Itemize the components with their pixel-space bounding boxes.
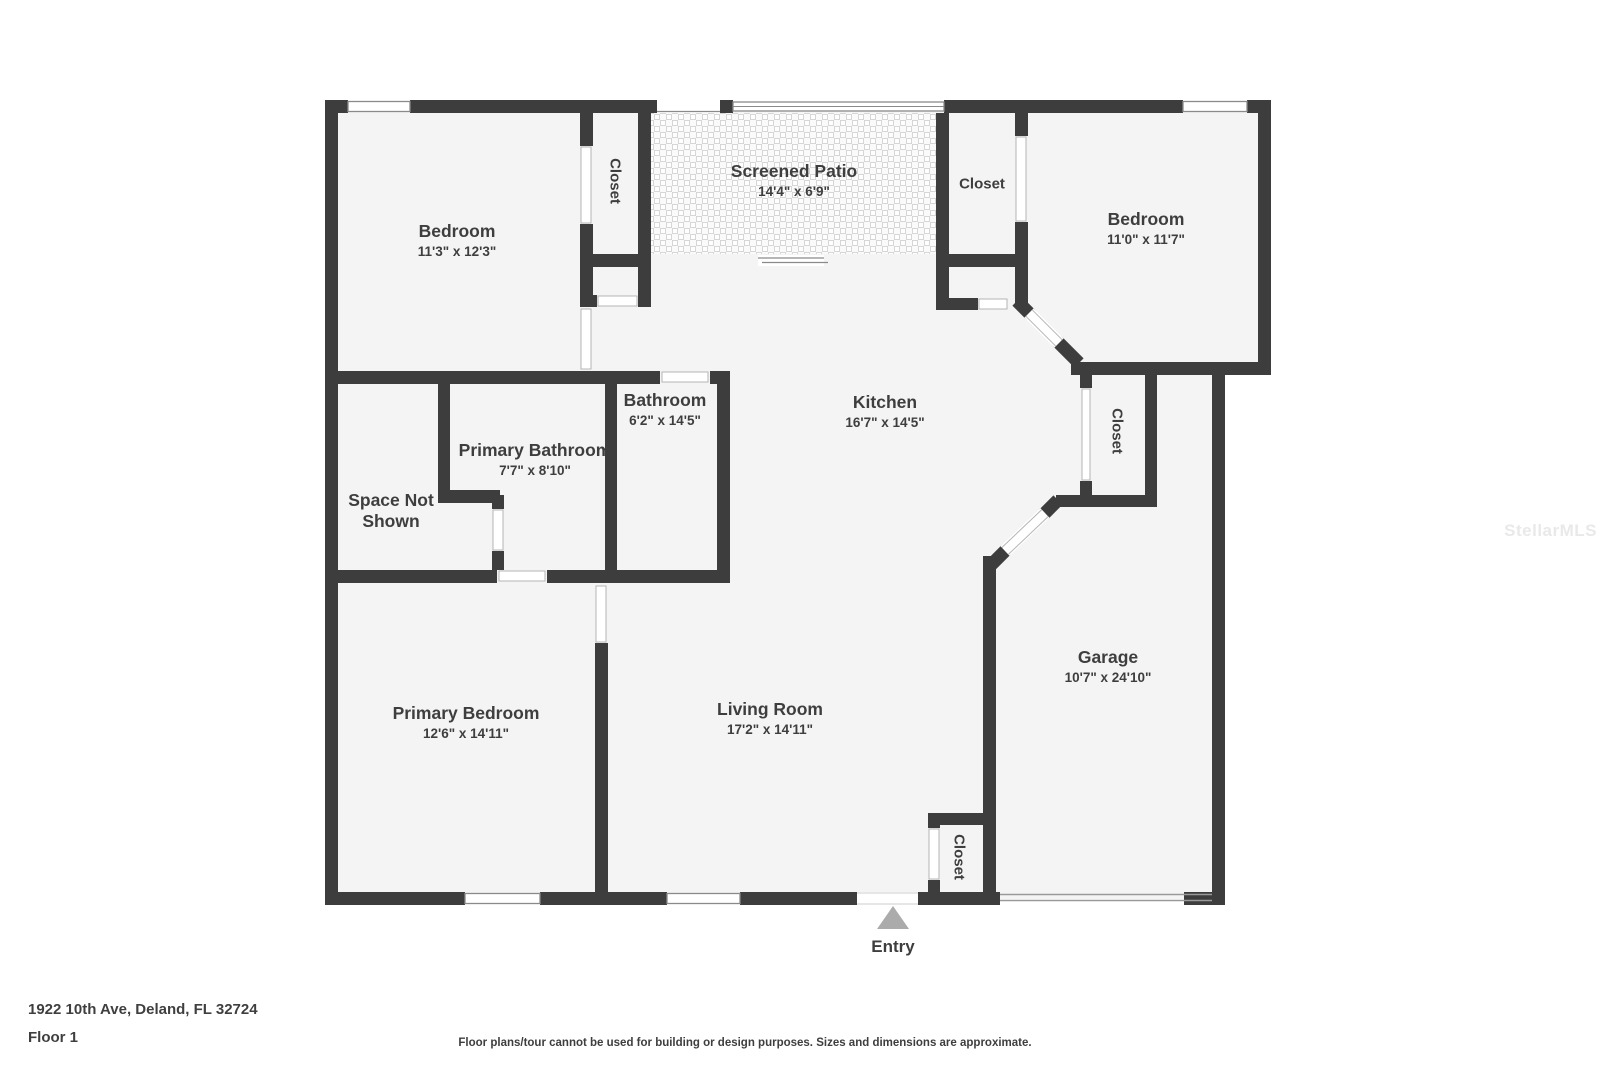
room-label-screened-patio: Screened Patio 14'4" x 6'9" <box>731 161 857 201</box>
room-name: Garage <box>1065 647 1152 668</box>
room-label-primary-bathroom: Primary Bathroom 7'7" x 8'10" <box>459 440 612 480</box>
room-name: Primary Bathroom <box>459 440 612 461</box>
room-dims: 6'2" x 14'5" <box>624 413 707 429</box>
room-label-primary-bedroom: Primary Bedroom 12'6" x 14'11" <box>393 703 540 743</box>
closet-label-right-middle: Closet <box>1109 408 1126 454</box>
entry-opening <box>857 892 918 905</box>
floor-plan-drawing <box>0 0 1600 1066</box>
room-label-space-not-shown: Space Not Shown <box>326 490 456 533</box>
room-dims: 14'4" x 6'9" <box>731 184 857 200</box>
room-label-bedroom-top-left: Bedroom 11'3" x 12'3" <box>418 221 497 261</box>
closet-label-entry: Closet <box>951 834 968 880</box>
address-text: 1922 10th Ave, Deland, FL 32724 <box>28 1001 258 1018</box>
floor-plan-page: Bedroom 11'3" x 12'3" Screened Patio 14'… <box>0 0 1600 1066</box>
room-name: Kitchen <box>845 392 924 413</box>
room-dims: 11'0" x 11'7" <box>1107 232 1185 248</box>
room-name: Bedroom <box>418 221 497 242</box>
room-dims: 11'3" x 12'3" <box>418 244 497 260</box>
room-dims: 12'6" x 14'11" <box>393 726 540 742</box>
patio-screen-opening <box>657 100 720 113</box>
room-name: Living Room <box>717 699 823 720</box>
room-label-kitchen: Kitchen 16'7" x 14'5" <box>845 392 924 432</box>
room-dims: 16'7" x 14'5" <box>845 415 924 431</box>
room-label-living-room: Living Room 17'2" x 14'11" <box>717 699 823 739</box>
stellar-mls-watermark: StellarMLS <box>1504 521 1597 541</box>
patio-slider-door <box>758 255 828 266</box>
entry-arrow-icon <box>877 906 909 929</box>
room-label-bedroom-top-right: Bedroom 11'0" x 11'7" <box>1107 209 1185 249</box>
entry-label: Entry <box>871 937 914 957</box>
room-dims: 10'7" x 24'10" <box>1065 670 1152 686</box>
room-name: Bedroom <box>1107 209 1185 230</box>
room-label-garage: Garage 10'7" x 24'10" <box>1065 647 1152 687</box>
room-label-bathroom: Bathroom 6'2" x 14'5" <box>624 390 707 430</box>
room-name: Screened Patio <box>731 161 857 182</box>
room-name: Bathroom <box>624 390 707 411</box>
floor-number-text: Floor 1 <box>28 1029 78 1046</box>
room-dims: 17'2" x 14'11" <box>717 722 823 738</box>
room-name: Space Not Shown <box>326 490 456 533</box>
room-name: Primary Bedroom <box>393 703 540 724</box>
closet-label-top-left: Closet <box>607 158 624 204</box>
room-dims: 7'7" x 8'10" <box>459 463 612 479</box>
disclaimer-text: Floor plans/tour cannot be used for buil… <box>400 1037 1090 1049</box>
closet-label-top-right: Closet <box>959 176 1005 193</box>
